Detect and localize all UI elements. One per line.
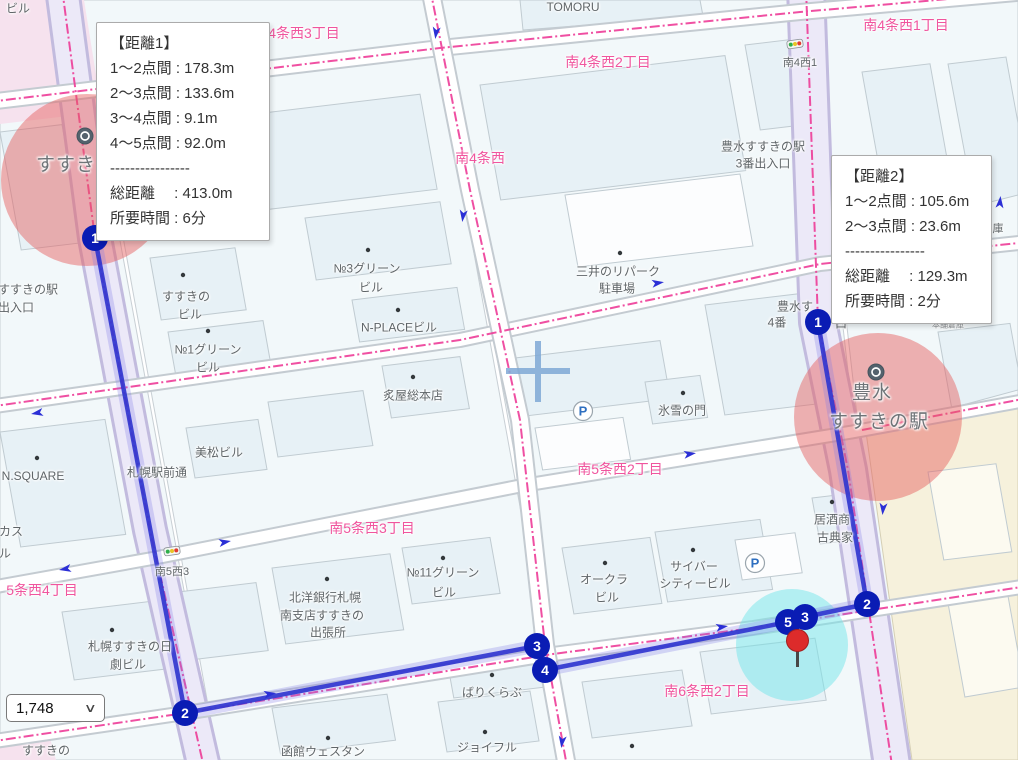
measurement-row: 総距離 : 129.3m <box>845 264 978 289</box>
measurement-row: 【距離2】 <box>845 164 978 189</box>
measurement-row: 所要時間 : 6分 <box>110 206 256 231</box>
measurement-row: ---------------- <box>110 156 256 181</box>
measurement-row: 2〜3点間 : 23.6m <box>845 214 978 239</box>
distance2-tooltip: 【距離2】1〜2点間 : 105.6m2〜3点間 : 23.6m--------… <box>831 155 992 324</box>
route1-waypoint-2[interactable]: 2 <box>172 700 198 726</box>
route1-waypoint-4[interactable]: 4 <box>532 657 558 683</box>
measurement-row: 1〜2点間 : 178.3m <box>110 56 256 81</box>
distance1-tooltip: 【距離1】1〜2点間 : 178.3m2〜3点間 : 133.6m3〜4点間 :… <box>96 22 270 241</box>
measurement-row: 2〜3点間 : 133.6m <box>110 81 256 106</box>
route2-waypoint-3[interactable]: 3 <box>792 604 818 630</box>
measurement-row: 総距離 : 413.0m <box>110 181 256 206</box>
chevron-down-icon: ∨ <box>84 701 97 715</box>
scale-select[interactable]: 1,748 ∨ <box>6 694 105 722</box>
pin-head <box>786 629 809 652</box>
route2-waypoint-2[interactable]: 2 <box>854 591 880 617</box>
measurement-row: 【距離1】 <box>110 31 256 56</box>
map-canvas[interactable]: P P 南4条西3丁目南4条西2丁目南4条西1丁目南4条西南5条西2丁目南5条西… <box>0 0 1018 760</box>
scale-select-value: 1,748 <box>16 700 54 717</box>
measurement-row: 4〜5点間 : 92.0m <box>110 131 256 156</box>
measurement-row: ---------------- <box>845 239 978 264</box>
route2-waypoint-1[interactable]: 1 <box>805 309 831 335</box>
route1-waypoint-3[interactable]: 3 <box>524 633 550 659</box>
measurement-row: 所要時間 : 2分 <box>845 289 978 314</box>
measurement-row: 3〜4点間 : 9.1m <box>110 106 256 131</box>
measurement-row: 1〜2点間 : 105.6m <box>845 189 978 214</box>
